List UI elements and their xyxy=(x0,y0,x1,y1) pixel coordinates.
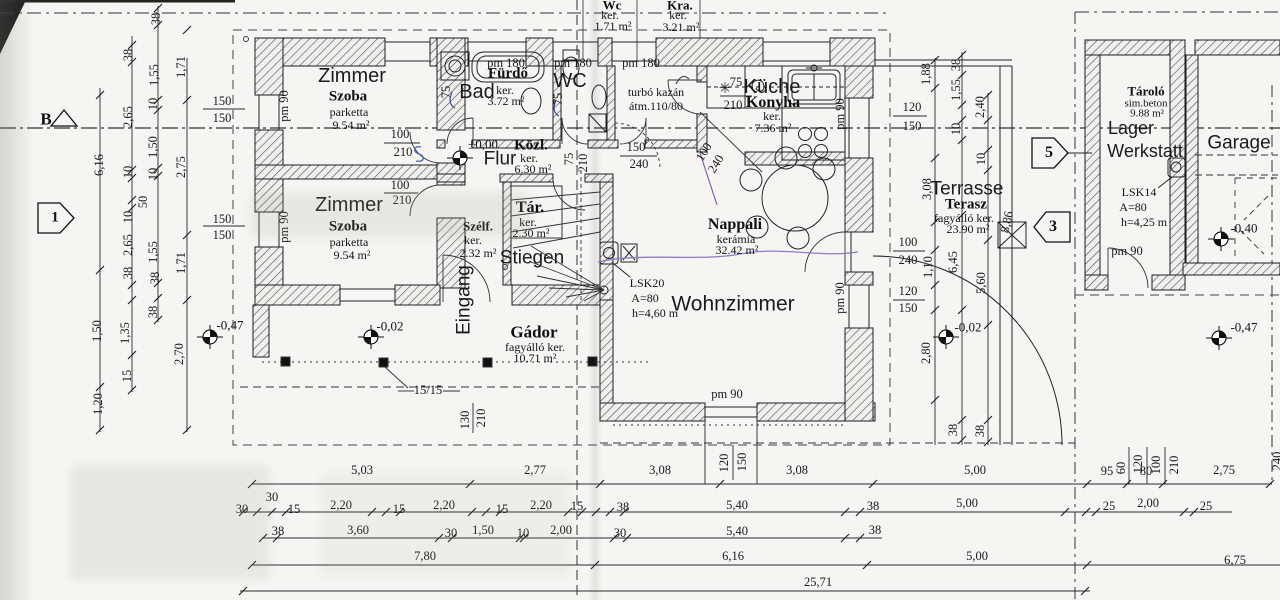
room-flur-name: Flur xyxy=(484,150,517,169)
dimension-label: 1,50 xyxy=(147,136,160,158)
dimension-label: 210 xyxy=(394,146,413,159)
dimension-label: 75 xyxy=(730,76,743,89)
room-gador-name: Gádor xyxy=(510,324,557,341)
dimension-label: 6,75 xyxy=(1224,554,1246,567)
dimension-label: 150 xyxy=(213,95,232,108)
room-zimmer1-name-de: Zimmer xyxy=(318,66,386,86)
room-lager-name: Lager xyxy=(1108,119,1154,137)
dimension-label: 95 xyxy=(1101,465,1114,478)
dimension-label: 120 xyxy=(718,454,731,473)
dimension-label: 2,00 xyxy=(550,524,572,537)
dimension-label: pm 180 xyxy=(622,57,660,70)
dimension-label: pm 90 xyxy=(278,90,291,122)
node-marker-5: 5 xyxy=(1045,145,1053,161)
dimension-label: 1,50 xyxy=(91,320,104,342)
room-tarolo-name: Tároló xyxy=(1127,85,1164,98)
dimension-label: pm 180 xyxy=(487,57,525,70)
dimension-label: 38 xyxy=(867,500,880,513)
dimension-label: 120 xyxy=(899,285,918,298)
dimension-label: 10 xyxy=(950,123,963,136)
node-marker-1: 1 xyxy=(51,211,59,226)
room-tar-name: Tár. xyxy=(516,200,544,216)
dimension-label: 2,70 xyxy=(173,343,186,365)
dimension-label: 2,20 xyxy=(330,499,352,512)
room-szelf-floor: ker. xyxy=(464,234,482,246)
level-porch: -0,02 xyxy=(376,320,403,333)
dimension-label: 38 xyxy=(869,524,882,537)
dimension-label: 10 xyxy=(147,98,160,111)
dimension-label: 150 xyxy=(903,120,922,133)
dimension-label: 3,08 xyxy=(921,178,934,200)
dimension-label: 2,77 xyxy=(524,464,546,477)
dimension-label: 2,20 xyxy=(433,499,455,512)
section-marker-b: B xyxy=(40,111,51,128)
dimension-label: 60 xyxy=(1115,462,1128,475)
room-szelf-name: Szélf. xyxy=(463,220,493,233)
room-zimmer2-name-de: Zimmer xyxy=(315,195,383,215)
room-zimmer2-name-hu: Szoba xyxy=(329,220,367,235)
dimension-label: pm 90 xyxy=(834,98,847,130)
dimension-label: 38 xyxy=(122,49,135,62)
lsk14-line1: LSK14 xyxy=(1122,186,1157,198)
room-zimmer2-area: 9.54 m² xyxy=(334,249,371,261)
dimension-label: 10 xyxy=(517,527,530,540)
dimension-label: 75 xyxy=(440,86,453,99)
dimension-label: 5,03 xyxy=(351,464,373,477)
room-nappali-area: 32.42 m² xyxy=(716,244,759,256)
dimension-label: 38 xyxy=(947,424,960,437)
dimension-label: 3,60 xyxy=(347,524,369,537)
dimension-label: 150 xyxy=(213,213,232,226)
dimension-label: 1,10 xyxy=(922,256,935,278)
dimension-label: 30 xyxy=(266,491,279,504)
dimension-label: 3,08 xyxy=(786,464,808,477)
dimension-label: 2,40 xyxy=(974,96,987,118)
dimension-label: 2,00 xyxy=(1137,497,1159,510)
room-tar-area: 2.30 m² xyxy=(513,227,550,239)
dimension-label: 3,08 xyxy=(649,464,671,477)
dimension-label: 10 xyxy=(122,166,135,179)
room-kra-area: 3.21 m² xyxy=(663,21,700,33)
dimension-label: 5,00 xyxy=(966,550,988,563)
dimension-label: 130 xyxy=(459,411,472,430)
dimension-label: 15 xyxy=(393,503,406,516)
lsk14-line2: A=80 xyxy=(1119,201,1146,213)
room-wohnzimmer-name: Wohnzimmer xyxy=(671,294,794,315)
dimension-label: 1,55 xyxy=(950,79,963,101)
dimension-label: 210 xyxy=(475,409,488,428)
lsk20-line1: LSK20 xyxy=(630,277,665,289)
dimension-label: 5,00 xyxy=(964,464,986,477)
dimension-label: 15 xyxy=(121,370,134,383)
dimension-label: pm 90 xyxy=(278,211,291,243)
dimension-label: 8,86 xyxy=(999,210,1016,234)
dimension-label: 210 xyxy=(1168,456,1181,475)
dimension-label: 150 xyxy=(627,141,646,154)
dimension-label: 2,20 xyxy=(530,499,552,512)
dimension-label: 30 xyxy=(445,527,458,540)
room-stiegen-name: Stiegen xyxy=(500,249,564,268)
dimension-label: 1,20 xyxy=(92,393,105,415)
room-zimmer1-floor: parketta xyxy=(330,106,369,118)
dimension-label: 75 xyxy=(552,93,565,106)
dimension-label: 38 xyxy=(150,13,163,26)
dimension-label: pm 90 xyxy=(711,388,743,401)
dimension-label: 15 xyxy=(571,500,584,513)
room-bad-area: 3.72 m² xyxy=(488,95,525,107)
level-terrace: -0,02 xyxy=(954,321,981,334)
dimension-label: 210 xyxy=(577,154,590,173)
dimension-label: 7,80 xyxy=(414,550,436,563)
room-zimmer1-area: 9.54 m² xyxy=(333,119,370,131)
dimension-label: 80 xyxy=(1140,465,1153,478)
dimension-label: 150 xyxy=(213,112,232,125)
dimension-label: 210 xyxy=(724,99,743,112)
dimension-label: pm 90 xyxy=(1111,245,1143,258)
dimension-label: 150 xyxy=(736,453,749,472)
dimension-label: 5,60 xyxy=(975,272,988,294)
dimension-label: 10 xyxy=(147,168,160,181)
dimension-label: 6,16 xyxy=(722,550,744,563)
dimension-label: 38 xyxy=(147,306,160,319)
dimension-label: 240 xyxy=(899,254,918,267)
boiler-line1: turbó kazán xyxy=(628,86,684,98)
dimension-label: 38 xyxy=(617,501,630,514)
dimension-label: 100 xyxy=(391,128,410,141)
dimension-label: 2,75 xyxy=(175,156,188,178)
dimension-label: 30 xyxy=(614,527,627,540)
dimension-label: 6,16 xyxy=(93,154,106,176)
dimension-label: 25 xyxy=(1200,500,1213,513)
dimension-label: 120 xyxy=(903,101,922,114)
dimension-label: 38 xyxy=(149,272,162,285)
dimension-label: 6,45 xyxy=(947,251,960,273)
room-eingang-name: Eingang xyxy=(455,265,474,335)
room-werkstatt-name: Werkstatt xyxy=(1107,142,1183,160)
room-szelf-area: 2.32 m² xyxy=(460,247,497,259)
dimension-label: 5,40 xyxy=(726,499,748,512)
labels-layer: B 1 5 3 Zimmer Szoba parketta 9.54 m² Zi… xyxy=(0,0,1280,600)
dimension-label: 10 xyxy=(122,211,135,224)
dimension-label: 15 xyxy=(496,503,509,516)
room-garage-name: Garage xyxy=(1207,134,1270,153)
dimension-label: 10 xyxy=(975,153,988,166)
lsk20-line2: A=80 xyxy=(631,292,658,304)
dimension-label: 150 xyxy=(213,229,232,242)
floor-plan-canvas: ✳ xyxy=(0,0,1280,600)
dimension-label: 100 xyxy=(899,236,918,249)
dimension-label: 100 xyxy=(391,179,410,192)
dimension-label: 2,75 xyxy=(1213,464,1235,477)
dimension-label: pm 180 xyxy=(554,57,592,70)
room-nappali-name: Nappali xyxy=(708,217,762,233)
dimension-label: 25,71 xyxy=(804,576,832,589)
room-zimmer1-name-hu: Szoba xyxy=(329,90,367,105)
dimension-label: 5,40 xyxy=(726,525,748,538)
dimension-label: 1,50 xyxy=(472,524,494,537)
room-koezl-area: 6.30 m² xyxy=(515,163,552,175)
dimension-label: 1,88 xyxy=(920,63,933,85)
dimension-label: 75 xyxy=(563,153,576,166)
dimension-label: 1,55 xyxy=(148,64,161,86)
dimension-label: 1,55 xyxy=(147,241,160,263)
level-porch-left: -0,47 xyxy=(216,319,243,332)
dimension-label: 38 xyxy=(974,425,987,438)
dimension-label: 2,65 xyxy=(122,106,135,128)
dimension-label: 5,00 xyxy=(956,497,978,510)
level-garage: -0,40 xyxy=(1230,222,1257,235)
dimension-label: 15/15 xyxy=(414,384,442,397)
dimension-label: 150 xyxy=(899,302,918,315)
dimension-label: pm 90 xyxy=(834,282,847,314)
dimension-label: 50 xyxy=(137,196,150,209)
dimension-label: 38 xyxy=(950,59,963,72)
lsk20-line3: h=4,60 m xyxy=(632,307,678,319)
dimension-label: 25 xyxy=(1103,500,1116,513)
dimension-label: 1,71 xyxy=(175,252,188,274)
dimension-label: 38 xyxy=(272,525,285,538)
room-terrasse-area: 23.90 m² xyxy=(947,223,990,235)
room-kueche-area: 7.36 m² xyxy=(755,122,792,134)
dimension-label: 240 xyxy=(630,158,649,171)
room-wc-small-area: 1.71 m² xyxy=(595,20,632,32)
dimension-label: 38 xyxy=(122,267,135,280)
room-wc-name: WC xyxy=(553,71,586,91)
room-gador-area: 10.71 m² xyxy=(514,352,557,364)
node-marker-3: 3 xyxy=(1049,219,1057,235)
dimension-label: 2,65 xyxy=(122,234,135,256)
level-east: -0,47 xyxy=(1230,321,1257,334)
dimension-label: 1,35 xyxy=(119,322,132,344)
dimension-label: 15 xyxy=(288,503,301,516)
dimension-label: 2,80 xyxy=(920,342,933,364)
lsk14-line3: h=4,25 m xyxy=(1121,216,1167,228)
dimension-label: 1,71 xyxy=(175,56,188,78)
dimension-label: 210 xyxy=(393,194,412,207)
dimension-label: 240 xyxy=(1271,452,1280,471)
room-zimmer2-floor: parketta xyxy=(330,236,369,248)
boiler-line2: átm.110/80 xyxy=(629,100,683,112)
dimension-label: 30 xyxy=(236,503,249,516)
